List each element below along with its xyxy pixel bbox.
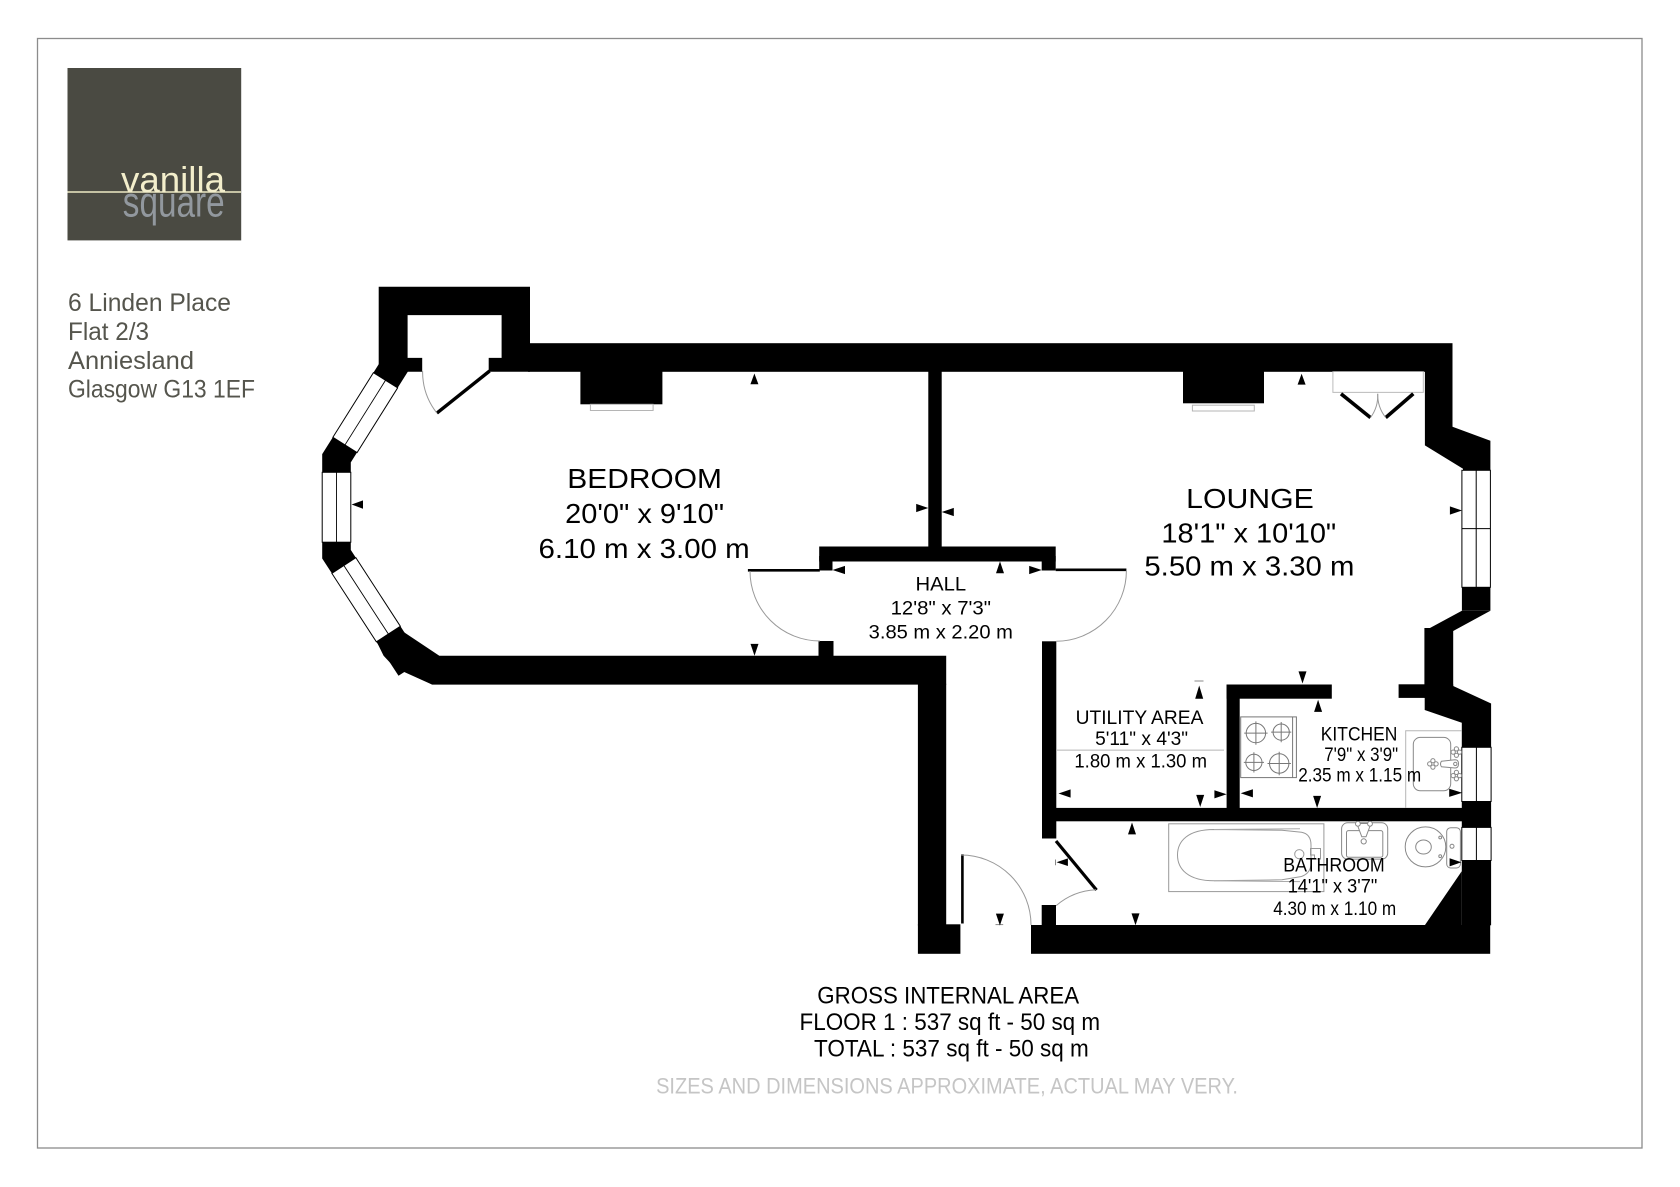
svg-text:14'1" x 3'7": 14'1" x 3'7" (1288, 877, 1378, 898)
svg-text:1.80 m x 1.30 m: 1.80 m x 1.30 m (1074, 751, 1207, 772)
svg-text:6.10 m x 3.00 m: 6.10 m x 3.00 m (539, 533, 750, 564)
svg-text:BATHROOM: BATHROOM (1283, 855, 1384, 876)
svg-text:TOTAL : 537 sq ft - 50 sq m: TOTAL : 537 sq ft - 50 sq m (814, 1035, 1089, 1062)
svg-text:BEDROOM: BEDROOM (567, 463, 722, 494)
svg-text:5.50 m x 3.30 m: 5.50 m x 3.30 m (1144, 551, 1354, 582)
svg-text:vanilla: vanilla (121, 159, 226, 200)
svg-text:SIZES AND DIMENSIONS APPROXIMA: SIZES AND DIMENSIONS APPROXIMATE, ACTUAL… (656, 1074, 1238, 1099)
svg-text:Glasgow G13 1EF: Glasgow G13 1EF (68, 376, 255, 404)
svg-text:20'0" x 9'10": 20'0" x 9'10" (565, 498, 724, 529)
svg-text:GROSS INTERNAL AREA: GROSS INTERNAL AREA (817, 983, 1079, 1010)
svg-text:KITCHEN: KITCHEN (1321, 724, 1398, 745)
svg-text:UTILITY AREA: UTILITY AREA (1076, 708, 1204, 729)
svg-text:2.35 m x 1.15 m: 2.35 m x 1.15 m (1298, 766, 1421, 787)
svg-text:7'9" x 3'9": 7'9" x 3'9" (1324, 745, 1398, 766)
svg-text:12'8" x 7'3": 12'8" x 7'3" (891, 599, 991, 620)
svg-text:4.30 m x 1.10 m: 4.30 m x 1.10 m (1273, 899, 1396, 920)
svg-text:HALL: HALL (916, 575, 967, 596)
svg-text:18'1" x 10'10": 18'1" x 10'10" (1161, 517, 1336, 548)
svg-text:5'11" x 4'3": 5'11" x 4'3" (1095, 729, 1188, 750)
svg-text:Flat 2/3: Flat 2/3 (68, 318, 149, 346)
svg-text:3.85 m x 2.20 m: 3.85 m x 2.20 m (869, 622, 1013, 643)
svg-text:6 Linden Place: 6 Linden Place (68, 289, 231, 317)
svg-text:Anniesland: Anniesland (68, 347, 194, 375)
svg-text:FLOOR 1 : 537 sq ft - 50 sq m: FLOOR 1 : 537 sq ft - 50 sq m (800, 1009, 1101, 1036)
svg-text:LOUNGE: LOUNGE (1186, 483, 1314, 514)
